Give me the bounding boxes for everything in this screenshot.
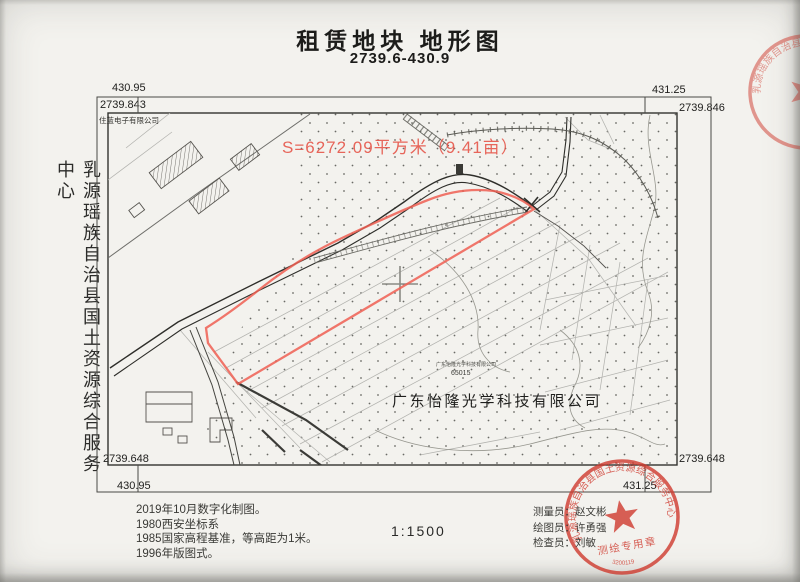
parcel-area-label: S=6272.09平方米（9.41亩） — [282, 133, 519, 158]
survey-notes: 2019年10月数字化制图。 1980西安坐标系 1985国家高程基准，等高距为… — [136, 503, 317, 561]
credits-block: 测量员：赵文彬 绘图员：许勇强 检查员：刘敏 — [533, 505, 607, 552]
seal-partial-top-right: 乳源瑶族自治县国土资源综合服务中心 — [735, 21, 800, 163]
credit-draftsman: 绘图员：许勇强 — [533, 521, 607, 537]
note-line: 1980西安坐标系 — [136, 518, 317, 533]
note-line: 2019年10月数字化制图。 — [136, 503, 317, 518]
scanned-topographic-map-page: 租赁地块 地形图 2739.6-430.9 乳源瑶族自治县国土资源综合服务中心 … — [0, 0, 800, 582]
svg-text:3200119: 3200119 — [611, 556, 636, 570]
corner-company-label: 住蓝电子有限公司 — [99, 115, 159, 126]
building-hatched — [129, 141, 260, 217]
seal-serial: 3200119 — [611, 556, 636, 570]
note-line: 1985国家高程基准，等高距为1米。 — [136, 532, 317, 547]
map-canvas: 乳源瑶族自治县国土资源综合服务中心 测绘专用章 3200119 乳源瑶族自治县国… — [0, 0, 800, 582]
credit-surveyor: 测量员：赵文彬 — [533, 505, 607, 521]
credit-inspector: 检查员：刘敏 — [533, 536, 607, 552]
small-building-solid — [456, 164, 463, 174]
company-name-small-label: 广东怡隆光学科技有限公司 — [436, 361, 496, 368]
seal-star-icon — [602, 497, 641, 534]
parcel-number-label: 65015 — [451, 370, 470, 377]
seal-star-icon — [785, 71, 800, 111]
company-name-label: 广东怡隆光学科技有限公司 — [392, 390, 602, 411]
vegetation-dots — [205, 113, 677, 465]
scale-label: 1:1500 — [391, 523, 446, 539]
note-line: 1996年版图式。 — [136, 547, 317, 562]
